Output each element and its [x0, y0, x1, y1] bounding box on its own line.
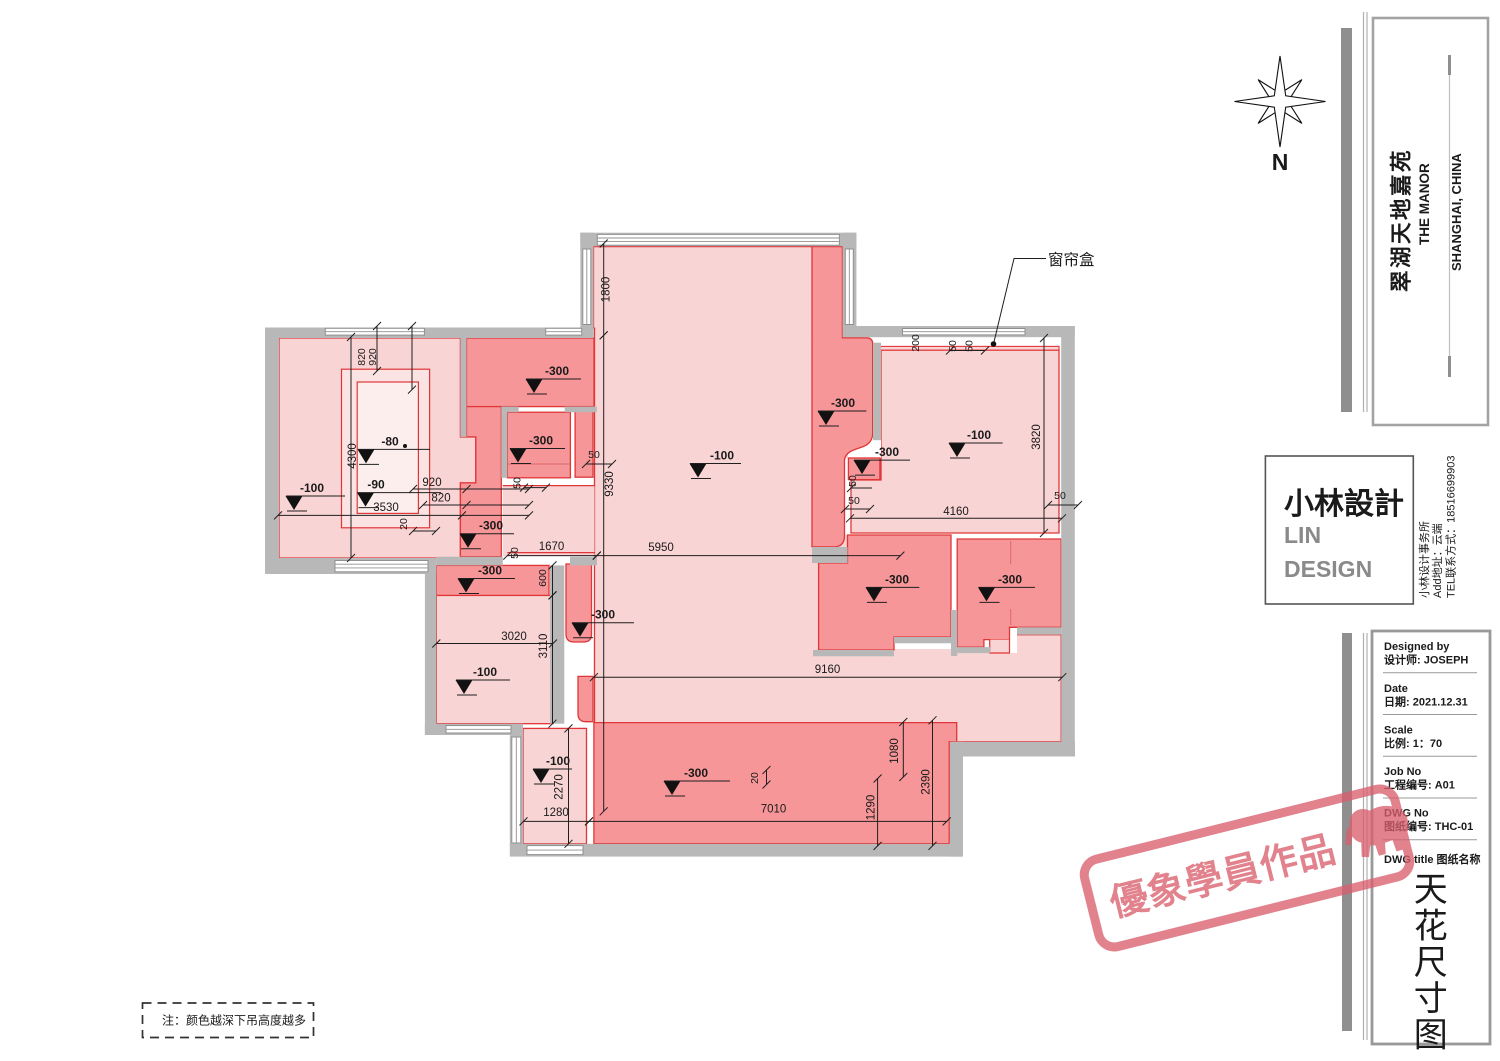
- svg-text:工程编号: A01: 工程编号: A01: [1384, 778, 1455, 792]
- svg-text:日期: 2021.12.31: 日期: 2021.12.31: [1384, 695, 1468, 709]
- svg-text:920: 920: [367, 348, 379, 366]
- svg-text:9330: 9330: [604, 471, 616, 497]
- svg-text:窗帘盒: 窗帘盒: [1048, 251, 1095, 269]
- svg-text:花: 花: [1414, 907, 1448, 945]
- svg-text:優象學員作品: 優象學員作品: [1105, 829, 1340, 926]
- svg-text:THE MANOR: THE MANOR: [1417, 163, 1432, 245]
- svg-text:-100: -100: [710, 449, 734, 463]
- svg-text:5950: 5950: [648, 542, 674, 554]
- svg-text:4300: 4300: [347, 443, 359, 469]
- svg-text:1280: 1280: [543, 807, 569, 819]
- svg-text:小林設計: 小林設計: [1284, 487, 1404, 521]
- svg-text:200: 200: [910, 334, 922, 352]
- svg-text:寸: 寸: [1414, 980, 1448, 1018]
- svg-text:Designed by: Designed by: [1384, 641, 1450, 653]
- svg-text:3110: 3110: [538, 634, 550, 659]
- svg-text:-300: -300: [998, 572, 1022, 586]
- svg-text:4160: 4160: [943, 506, 969, 518]
- svg-text:1800: 1800: [601, 277, 613, 303]
- svg-text:N: N: [1272, 149, 1289, 175]
- svg-text:-300: -300: [545, 364, 569, 378]
- svg-text:3820: 3820: [1031, 424, 1043, 450]
- svg-text:3020: 3020: [501, 631, 527, 643]
- svg-text:50: 50: [847, 475, 859, 487]
- svg-text:50: 50: [512, 477, 524, 489]
- svg-text:-90: -90: [367, 478, 385, 492]
- svg-text:图: 图: [1414, 1017, 1448, 1055]
- svg-text:920: 920: [422, 477, 441, 489]
- svg-text:600: 600: [537, 569, 549, 587]
- svg-text:DWG title 图纸名称: DWG title 图纸名称: [1384, 852, 1481, 866]
- svg-text:-100: -100: [967, 428, 991, 442]
- svg-text:比例: 1：70: 比例: 1：70: [1384, 736, 1442, 750]
- svg-text:Date: Date: [1384, 683, 1408, 695]
- svg-text:-80: -80: [381, 434, 399, 448]
- svg-text:20: 20: [749, 772, 761, 784]
- svg-text:天: 天: [1414, 871, 1448, 909]
- svg-text:-300: -300: [529, 434, 553, 448]
- svg-text:50: 50: [588, 449, 600, 461]
- svg-text:1290: 1290: [866, 795, 878, 821]
- svg-text:注：颜色越深下吊高度越多: 注：颜色越深下吊高度越多: [162, 1013, 306, 1028]
- svg-text:TEL联系方式：18516699903: TEL联系方式：18516699903: [1444, 456, 1458, 598]
- svg-text:SHANGHAI, CHINA: SHANGHAI, CHINA: [1449, 153, 1464, 271]
- svg-text:7010: 7010: [761, 804, 787, 816]
- svg-text:-300: -300: [479, 519, 503, 533]
- svg-text:Job No: Job No: [1384, 766, 1422, 778]
- svg-text:-100: -100: [473, 665, 497, 679]
- svg-text:-300: -300: [885, 572, 909, 586]
- svg-text:20: 20: [398, 518, 410, 530]
- svg-text:1080: 1080: [889, 738, 901, 764]
- svg-text:尺: 尺: [1414, 944, 1448, 982]
- svg-text:50: 50: [848, 495, 860, 507]
- svg-text:2270: 2270: [554, 774, 566, 800]
- svg-text:-300: -300: [478, 564, 502, 578]
- svg-text:设计师: JOSEPH: 设计师: JOSEPH: [1384, 653, 1468, 667]
- svg-text:Scale: Scale: [1384, 725, 1413, 737]
- svg-text:-300: -300: [591, 608, 615, 622]
- svg-text:2390: 2390: [921, 769, 933, 795]
- svg-text:50: 50: [509, 547, 521, 559]
- svg-text:9160: 9160: [815, 664, 841, 676]
- svg-text:Add地址：云端: Add地址：云端: [1430, 523, 1444, 598]
- svg-text:DESIGN: DESIGN: [1284, 556, 1372, 582]
- svg-text:翠湖天地嘉苑: 翠湖天地嘉苑: [1390, 148, 1414, 292]
- svg-text:小林设计事务所: 小林设计事务所: [1417, 521, 1431, 598]
- svg-text:820: 820: [431, 493, 450, 505]
- svg-text:-100: -100: [546, 754, 570, 768]
- svg-text:-100: -100: [300, 481, 324, 495]
- svg-text:1670: 1670: [539, 541, 565, 553]
- svg-text:-300: -300: [831, 396, 855, 410]
- svg-text:50: 50: [1054, 490, 1066, 502]
- svg-text:-300: -300: [684, 766, 708, 780]
- svg-text:-300: -300: [875, 445, 899, 459]
- svg-text:LIN: LIN: [1284, 522, 1321, 548]
